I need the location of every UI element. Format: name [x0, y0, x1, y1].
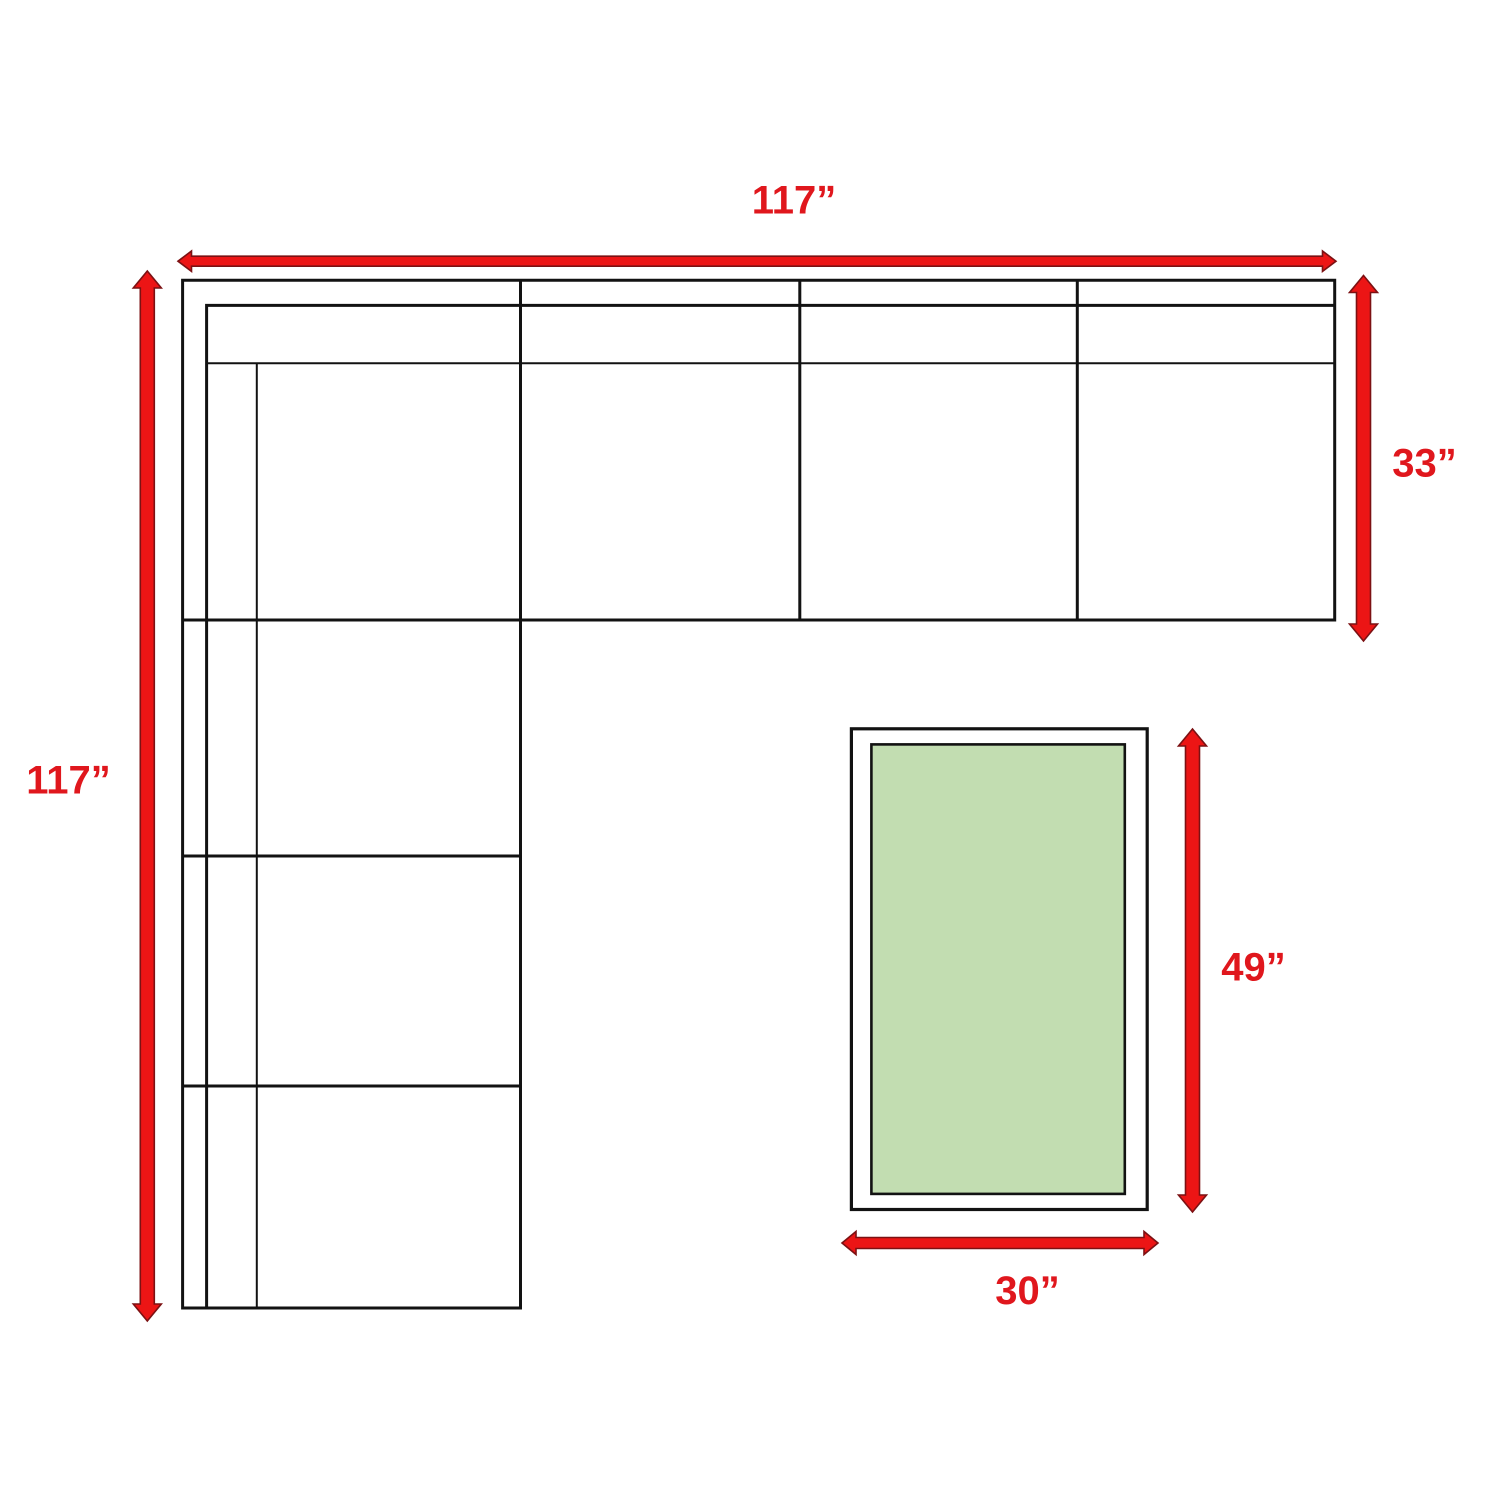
- svg-text:117”: 117”: [752, 179, 837, 223]
- svg-text:33”: 33”: [1392, 442, 1457, 486]
- svg-text:30”: 30”: [995, 1269, 1060, 1313]
- svg-text:49”: 49”: [1221, 946, 1286, 990]
- svg-text:117”: 117”: [26, 759, 111, 803]
